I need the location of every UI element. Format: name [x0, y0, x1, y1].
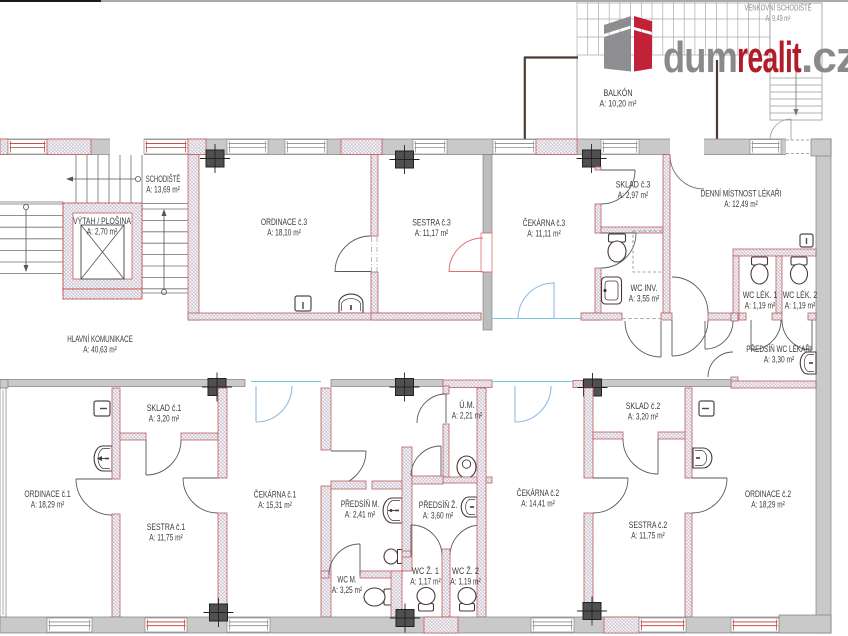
svg-text:A: 1,17 m²: A: 1,17 m²	[410, 577, 441, 588]
svg-text:ČEKÁRNA č.1: ČEKÁRNA č.1	[254, 490, 296, 501]
svg-text:SESTRA č.3: SESTRA č.3	[412, 218, 451, 229]
svg-text:A: 18,29 m²: A: 18,29 m²	[31, 500, 65, 511]
svg-text:A: 1,19 m²: A: 1,19 m²	[785, 301, 816, 312]
svg-text:A: 11,75 m²: A: 11,75 m²	[149, 533, 183, 544]
svg-text:ORDINACE č.2: ORDINACE č.2	[745, 489, 791, 500]
svg-text:A: 10,20 m²: A: 10,20 m²	[600, 99, 637, 110]
svg-text:SESTRA č.2: SESTRA č.2	[629, 520, 668, 531]
svg-text:A: 3,20 m²: A: 3,20 m²	[628, 412, 659, 423]
svg-text:A: 18,10 m²: A: 18,10 m²	[267, 228, 301, 239]
svg-text:A: 2,70 m²: A: 2,70 m²	[87, 227, 118, 238]
svg-text:WC M.: WC M.	[337, 575, 356, 586]
svg-text:A: 11,17 m²: A: 11,17 m²	[415, 228, 449, 239]
svg-text:WC Ž. 2: WC Ž. 2	[452, 566, 479, 577]
svg-text:WC LÉK. 1: WC LÉK. 1	[743, 290, 778, 301]
svg-text:Ú.M.: Ú.M.	[459, 400, 474, 411]
svg-text:A: 40,63 m²: A: 40,63 m²	[83, 345, 117, 356]
svg-text:dumrealit.cz: dumrealit.cz	[663, 33, 848, 82]
svg-text:HLAVNÍ KOMUNIKACE: HLAVNÍ KOMUNIKACE	[67, 334, 133, 345]
svg-text:A: 3,20 m²: A: 3,20 m²	[149, 414, 180, 425]
svg-text:A: 2,97 m²: A: 2,97 m²	[618, 190, 649, 201]
svg-text:SESTRA č.1: SESTRA č.1	[147, 522, 186, 533]
svg-text:PŘEDSÍŇ Ž.: PŘEDSÍŇ Ž.	[419, 500, 458, 511]
svg-text:A: 3,25 m²: A: 3,25 m²	[332, 585, 363, 596]
svg-text:VÝTAH / PLOŠINA: VÝTAH / PLOŠINA	[73, 216, 131, 227]
svg-text:A: 9,49 m²: A: 9,49 m²	[766, 14, 791, 23]
svg-text:A: 14,41 m²: A: 14,41 m²	[521, 499, 555, 510]
svg-text:A: 13,69 m²: A: 13,69 m²	[146, 185, 180, 196]
svg-text:A: 3,55 m²: A: 3,55 m²	[629, 294, 660, 305]
svg-text:DENNÍ MÍSTNOST LÉKAŘI: DENNÍ MÍSTNOST LÉKAŘI	[701, 189, 782, 200]
svg-text:A: 15,31 m²: A: 15,31 m²	[258, 500, 292, 511]
svg-text:A: 1,19 m²: A: 1,19 m²	[450, 577, 481, 588]
svg-text:BALKÓN: BALKÓN	[603, 88, 632, 99]
svg-text:ORDINACE č.1: ORDINACE č.1	[24, 489, 70, 500]
svg-text:A: 2,41 m²: A: 2,41 m²	[345, 510, 376, 521]
svg-text:SKLAD č.3: SKLAD č.3	[616, 180, 651, 191]
svg-text:A: 11,75 m²: A: 11,75 m²	[631, 531, 665, 542]
svg-text:A: 11,11 m²: A: 11,11 m²	[527, 229, 561, 240]
svg-text:WC LÉK. 2: WC LÉK. 2	[783, 290, 818, 301]
svg-text:ORDINACE č.3: ORDINACE č.3	[261, 217, 307, 228]
svg-text:WC INV.: WC INV.	[631, 283, 658, 294]
svg-text:SCHODIŠTĚ: SCHODIŠTĚ	[146, 174, 181, 185]
svg-text:A: 2,21 m²: A: 2,21 m²	[452, 411, 483, 422]
svg-text:A: 3,60 m²: A: 3,60 m²	[423, 511, 454, 522]
svg-text:ČEKÁRNA č.2: ČEKÁRNA č.2	[517, 488, 559, 499]
svg-text:SKLAD č.2: SKLAD č.2	[626, 401, 661, 412]
svg-text:A: 18,29 m²: A: 18,29 m²	[751, 500, 785, 511]
svg-text:VENKOVNÍ SCHODIŠTĚ: VENKOVNÍ SCHODIŠTĚ	[744, 3, 812, 13]
svg-text:A: 12,49 m²: A: 12,49 m²	[724, 199, 758, 210]
svg-text:WC Ž. 1: WC Ž. 1	[412, 566, 439, 577]
svg-text:ČEKÁRNA č.3: ČEKÁRNA č.3	[523, 218, 565, 229]
svg-text:A: 3,30 m²: A: 3,30 m²	[764, 355, 795, 366]
svg-text:A: 1,19 m²: A: 1,19 m²	[745, 301, 776, 312]
svg-text:PŘEDSÍŇ M.: PŘEDSÍŇ M.	[341, 499, 380, 510]
svg-text:PŘEDSÍŇ WC LÉKAŘI: PŘEDSÍŇ WC LÉKAŘI	[746, 344, 812, 355]
svg-text:SKLAD č.1: SKLAD č.1	[147, 403, 182, 414]
